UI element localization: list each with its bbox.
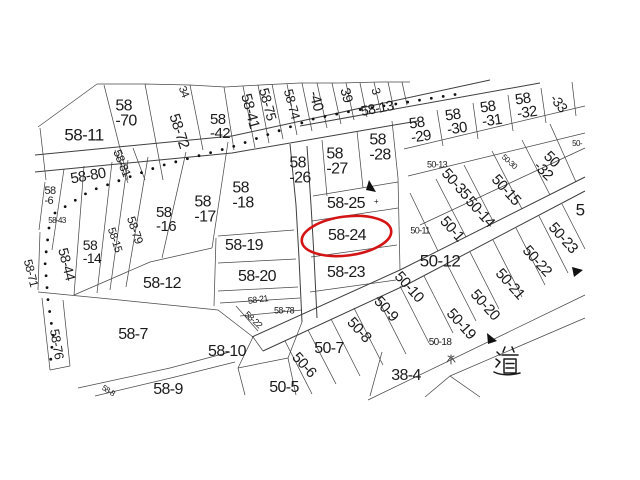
road-kanji-label: 道 (501, 354, 510, 367)
parcel-label-58-23: 58-23 (327, 265, 365, 281)
parcel-label-50-18: 50-18 (429, 338, 452, 348)
parcel-label-58-6: 58 -6 (44, 186, 55, 206)
parcel-label-58-80: 58-80 (69, 166, 106, 187)
parcel-label-50-13: 50-13 (427, 161, 447, 170)
parcel-label-34: 34 (176, 85, 190, 99)
parcel-label-58-31: 58 -31 (479, 99, 503, 129)
parcel-label-58-25: 58-25 (327, 196, 365, 212)
parcel-label-50-5: 50-5 (269, 380, 299, 396)
parcel-label-58-72: 58-72 (166, 112, 191, 150)
parcel-label-58-21: 58-21 (247, 294, 268, 306)
parcel-label-58-32: 58 -32 (514, 91, 538, 121)
parcel-label-58-28: 58 -28 (369, 133, 390, 162)
parcel-label-58-17: 58 -17 (194, 195, 215, 224)
parcel-label-+: + (374, 198, 378, 206)
parcel-label-58-27: 58 -27 (326, 147, 347, 176)
parcel-label-50-32: 50 -32 (531, 149, 565, 183)
parcel-label-58-11: 58-11 (64, 127, 103, 144)
parcel-label-58-76: 58-76 (48, 328, 66, 360)
parcel-label-58-71: 58-71 (22, 258, 40, 288)
parcel-label-58-19: 58-19 (225, 238, 263, 254)
parcel-label-58-43: 58-43 (48, 217, 65, 225)
parcel-label-50-: 50- (572, 140, 582, 148)
parcel-label--33: -33 (548, 91, 570, 114)
parcel-label-5: 5 (576, 202, 585, 219)
parcel-label-38-4: 38-4 (391, 368, 421, 384)
parcel-label-50-8: 50-8 (344, 315, 374, 346)
parcel-label-58-29: 58 -29 (408, 115, 432, 145)
parcel-label-58-14: 58 -14 (83, 239, 101, 265)
parcel-label-58-26: 58 -26 (289, 156, 310, 185)
cadastral-map: 58-1158 -7058-723458 -4258-4158-7558-74-… (0, 0, 640, 480)
parcel-label-58-18: 58 -18 (232, 181, 253, 210)
parcel-label-58-20: 58-20 (238, 269, 276, 285)
parcel-label--40: -40 (306, 89, 326, 112)
parcel-label-50-35: 50-35 (439, 166, 474, 202)
parcel-label-50-9: 50-9 (371, 294, 401, 325)
water-mark-label: 水 (446, 353, 455, 366)
parcel-label-58-12: 58-12 (143, 276, 181, 292)
parcel-label-50-12: 50-12 (420, 253, 460, 270)
parcel-label-50-22: 50-22 (520, 243, 555, 279)
parcel-label-58-30: 58 -30 (444, 107, 468, 137)
parcel-label-50-14: 50-14 (463, 194, 498, 230)
parcel-label-58-70: 58 -70 (115, 99, 136, 128)
parcel-label-58-16: 58 -16 (156, 206, 176, 234)
parcel-label-58-7: 58-7 (118, 327, 148, 343)
parcel-label-58-24: 58-24 (328, 228, 366, 244)
parcel-label-58-22: 58-22 (243, 310, 264, 330)
parcel-label-58-79: 58-79 (125, 215, 145, 245)
parcel-label-50-20: 50-20 (468, 287, 503, 323)
parcel-label-58-74: 58-74 (282, 88, 302, 121)
parcel-label-58-9: 58-9 (153, 382, 183, 398)
parcel-label-58-8: 58-8 (100, 384, 116, 398)
parcel-label-58-78: 58-78 (274, 307, 294, 316)
parcel-label-58-44: 58-44 (56, 246, 78, 281)
parcel-label-50-21: 50-21 (493, 266, 528, 302)
parcel-label-50-1: 50-1 (437, 214, 467, 245)
parcel-label-50-30: 50-30 (500, 153, 518, 171)
parcel-label-50-10: 50-10 (392, 269, 427, 305)
parcel-labels-layer: 58-1158 -7058-723458 -4258-4158-7558-74-… (0, 0, 640, 480)
parcel-label-3: 3 (369, 87, 382, 96)
parcel-label-50-15: 50-15 (489, 172, 524, 208)
parcel-label-58-15: 58-15 (105, 226, 123, 253)
parcel-label-50-11: 50-11 (410, 227, 429, 236)
parcel-label-58-10: 58-10 (208, 344, 246, 360)
parcel-label-50-7: 50-7 (314, 341, 344, 357)
parcel-label-58-42: 58 -42 (210, 113, 230, 141)
parcel-label-58-81: 58-81 (111, 148, 133, 178)
parcel-label-39: 39 (338, 86, 355, 104)
parcel-label-50-23: 50-23 (546, 220, 581, 256)
parcel-label-58-13: 58-13 (360, 98, 395, 118)
